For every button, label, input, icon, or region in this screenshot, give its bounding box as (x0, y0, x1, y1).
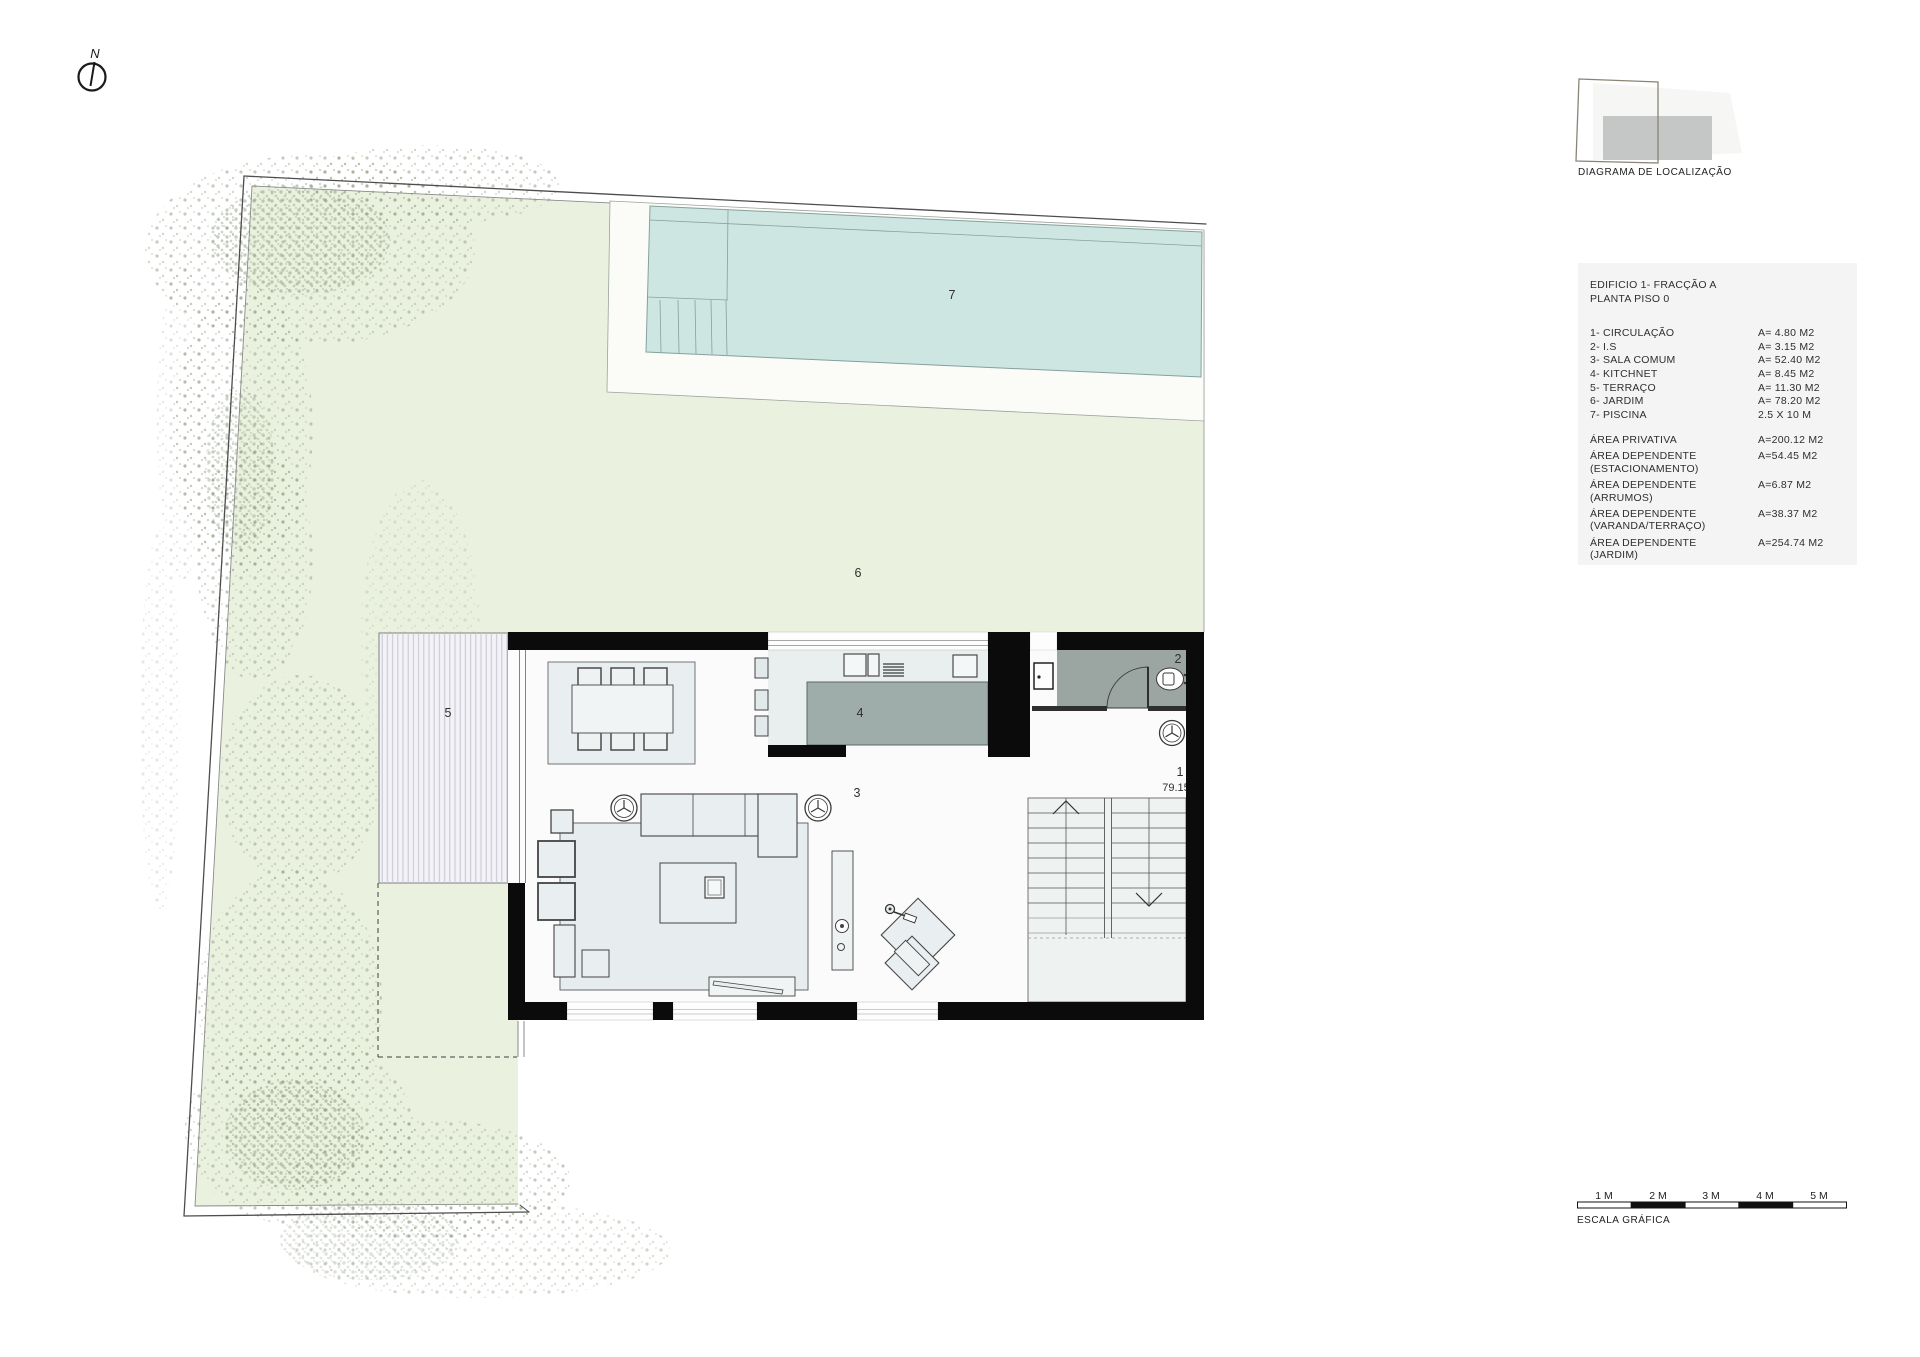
projection-edge-lines (518, 1021, 524, 1057)
legend-room-row: 4- KITCHNETA= 8.45 M2 (1590, 368, 1847, 382)
legend-room-row: 7- PISCINA2.5 X 10 M (1590, 409, 1847, 423)
wall-cabinet (755, 716, 768, 736)
legend-panel: EDIFICIO 1- FRACÇÃO A PLANTA PISO 0 1- C… (1578, 263, 1857, 565)
terrace-label: 5 (445, 706, 452, 720)
kitchen-counter (807, 682, 988, 745)
sofa-chaise (758, 794, 797, 857)
sink-icon (844, 654, 866, 676)
location-diagram-caption: DIAGRAMA DE LOCALIZAÇÃO (1578, 165, 1732, 178)
house: 4 2 (508, 632, 1204, 1020)
chair (578, 731, 601, 750)
legend-room-row: 1- CIRCULAÇÃOA= 4.80 M2 (1590, 327, 1847, 341)
dining-table (572, 685, 673, 733)
armchair (538, 883, 575, 920)
bathroom-wall (1148, 706, 1186, 711)
legend-area-row: ÁREA DEPENDENTEA=6.87 M2 (ARRUMOS) (1590, 479, 1847, 505)
armchair (538, 841, 575, 877)
legend-title-line1: EDIFICIO 1- FRACÇÃO A (1590, 279, 1847, 293)
sink-icon (868, 654, 879, 676)
level-label: 79.15 (1162, 782, 1190, 794)
svg-text:3 M: 3 M (1702, 1190, 1720, 1202)
legend-room-row: 3- SALA COMUMA= 52.40 M2 (1590, 354, 1847, 368)
toilet-dot (1184, 682, 1187, 685)
washing-machine-icon (1160, 721, 1185, 746)
north-label: N (90, 46, 100, 61)
ceiling-fixture-icon (611, 795, 637, 821)
chair (644, 731, 667, 750)
chair (578, 668, 601, 687)
svg-text:2 M: 2 M (1649, 1190, 1667, 1202)
location-diagram: DIAGRAMA DE LOCALIZAÇÃO (1568, 68, 1858, 198)
entry-door-icon (1034, 663, 1053, 689)
scale-bar-labels: 1 M 2 M 3 M 4 M 5 M (1595, 1190, 1828, 1202)
svg-text:4 M: 4 M (1756, 1190, 1774, 1202)
wc-label: 2 (1175, 652, 1182, 666)
legend-title-line2: PLANTA PISO 0 (1590, 293, 1847, 307)
kitchen-label: 4 (857, 706, 864, 720)
north-arrow-icon: N (79, 46, 106, 91)
stairs (1028, 798, 1186, 1002)
scale-bar-segments (1578, 1202, 1847, 1208)
legend-area-row: ÁREA DEPENDENTEA=254.74 M2 (JARDIM) (1590, 537, 1847, 563)
floor-lamp-dot (889, 908, 892, 911)
toilet-dot (1184, 674, 1187, 677)
armchair (551, 810, 573, 833)
pool-label: 7 (949, 288, 956, 302)
svg-text:1 M: 1 M (1595, 1190, 1613, 1202)
garden-label: 6 (855, 566, 862, 580)
svg-text:5 M: 5 M (1810, 1190, 1828, 1202)
speaker-dot (840, 924, 844, 928)
pouf (582, 950, 609, 977)
wall-cabinet (755, 690, 768, 710)
dining-area (548, 662, 695, 764)
wall-cabinet (755, 658, 768, 678)
legend-area-row: ÁREA PRIVATIVAA=200.12 M2 (1590, 434, 1847, 448)
appliance-icon (953, 655, 977, 677)
toilet-icon (1157, 668, 1184, 690)
scale-bar: 1 M 2 M 3 M 4 M 5 M ESCALA GRÁFICA (1577, 1186, 1862, 1236)
circulation-label: 1 (1177, 765, 1184, 779)
chair (611, 731, 634, 750)
legend-room-row: 2- I.SA= 3.15 M2 (1590, 341, 1847, 355)
chair (644, 668, 667, 687)
legend-area-list: ÁREA PRIVATIVAA=200.12 M2 ÁREA DEPENDENT… (1590, 434, 1847, 562)
chair (611, 668, 634, 687)
legend-title: EDIFICIO 1- FRACÇÃO A PLANTA PISO 0 (1590, 279, 1847, 306)
terrace-area: 5 (379, 633, 508, 883)
ceiling-fixture-icon (805, 795, 831, 821)
side-table (554, 925, 575, 977)
entry-door-knob (1037, 675, 1040, 678)
scale-bar-caption: ESCALA GRÁFICA (1577, 1213, 1670, 1226)
legend-area-row: ÁREA DEPENDENTEA=38.37 M2 (VARANDA/TERRA… (1590, 508, 1847, 534)
legend-room-row: 5- TERRAÇOA= 11.30 M2 (1590, 382, 1847, 396)
legend-room-list: 1- CIRCULAÇÃOA= 4.80 M2 2- I.SA= 3.15 M2… (1590, 327, 1847, 422)
site-plan: 7 6 5 4 (0, 0, 1920, 1357)
legend-area-row: ÁREA DEPENDENTEA=54.45 M2 (ESTACIONAMENT… (1590, 450, 1847, 476)
legend-room-row: 6- JARDIMA= 78.20 M2 (1590, 395, 1847, 409)
pool (646, 206, 1202, 377)
shelf-unit (832, 851, 853, 970)
living-label: 3 (854, 786, 861, 800)
bathroom-wall (1032, 706, 1107, 711)
